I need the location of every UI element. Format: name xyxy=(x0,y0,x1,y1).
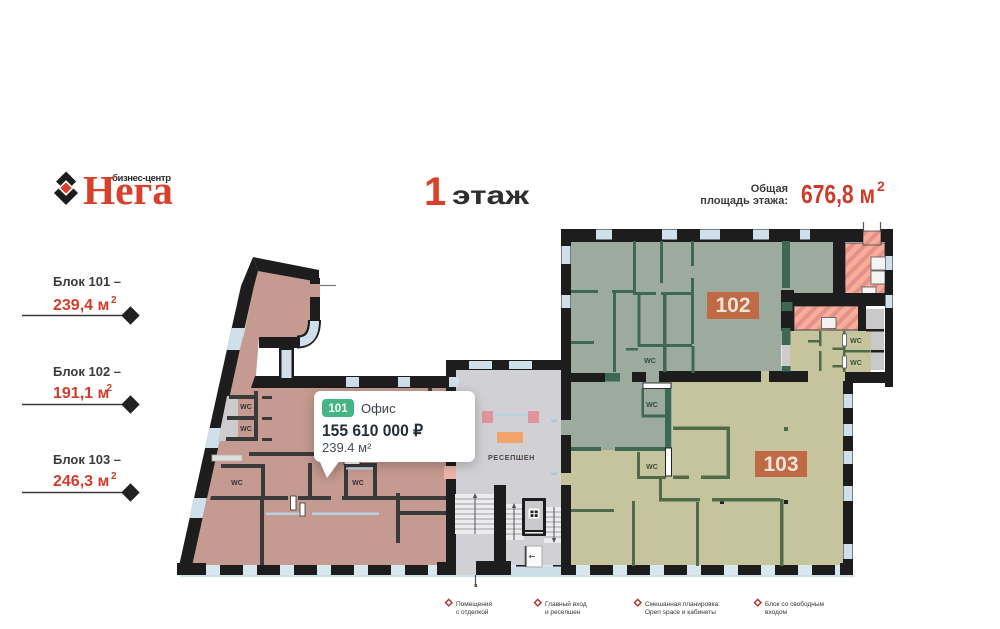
svg-text:Блок со свободным: Блок со свободным xyxy=(765,600,825,608)
svg-text:Главный вход: Главный вход xyxy=(545,600,587,608)
svg-text:Open space и кабинеты: Open space и кабинеты xyxy=(645,608,716,616)
svg-text:101: 101 xyxy=(328,403,348,415)
svg-text:и ресепшен: и ресепшен xyxy=(545,609,581,616)
svg-text:WC: WC xyxy=(352,480,364,487)
svg-text:2: 2 xyxy=(111,471,117,482)
svg-text:2: 2 xyxy=(107,383,113,394)
svg-text:площадь этажа:: площадь этажа: xyxy=(700,195,788,207)
svg-text:WC: WC xyxy=(240,426,252,433)
svg-text:Блок 102 –: Блок 102 – xyxy=(53,364,121,379)
svg-text:WC: WC xyxy=(646,402,658,409)
svg-text:Блок 103 –: Блок 103 – xyxy=(53,452,121,467)
svg-text:239,4 м: 239,4 м xyxy=(53,297,109,314)
svg-text:с отделкой: с отделкой xyxy=(456,608,489,616)
svg-text:WC: WC xyxy=(231,480,243,487)
svg-text:WC: WC xyxy=(646,464,658,471)
svg-text:Нега: Нега xyxy=(83,167,173,213)
svg-text:Блок 101 –: Блок 101 – xyxy=(53,274,121,289)
svg-text:Смешанная планировка:: Смешанная планировка: xyxy=(645,601,720,608)
svg-text:2: 2 xyxy=(877,178,885,194)
svg-text:WC: WC xyxy=(850,338,862,345)
svg-text:WC: WC xyxy=(850,360,862,367)
svg-text:Помещения: Помещения xyxy=(456,601,492,608)
svg-text:191,1 м: 191,1 м xyxy=(53,385,109,402)
svg-text:239.4 м²: 239.4 м² xyxy=(322,440,372,455)
svg-text:1: 1 xyxy=(424,170,446,214)
svg-text:102: 102 xyxy=(715,294,750,317)
svg-text:Офис: Офис xyxy=(361,401,396,416)
svg-text:103: 103 xyxy=(763,453,798,476)
svg-text:WC: WC xyxy=(240,404,252,411)
svg-text:246,3 м: 246,3 м xyxy=(53,473,109,490)
svg-text:этаж: этаж xyxy=(452,180,530,210)
svg-text:входом: входом xyxy=(765,609,788,616)
svg-text:WC: WC xyxy=(644,358,656,365)
svg-text:155 610 000 ₽: 155 610 000 ₽ xyxy=(322,422,423,440)
svg-text:676,8 м: 676,8 м xyxy=(801,179,875,209)
svg-text:2: 2 xyxy=(111,295,117,306)
svg-text:Общая: Общая xyxy=(751,183,788,195)
svg-text:РЕСЕПШЕН: РЕСЕПШЕН xyxy=(488,453,535,462)
